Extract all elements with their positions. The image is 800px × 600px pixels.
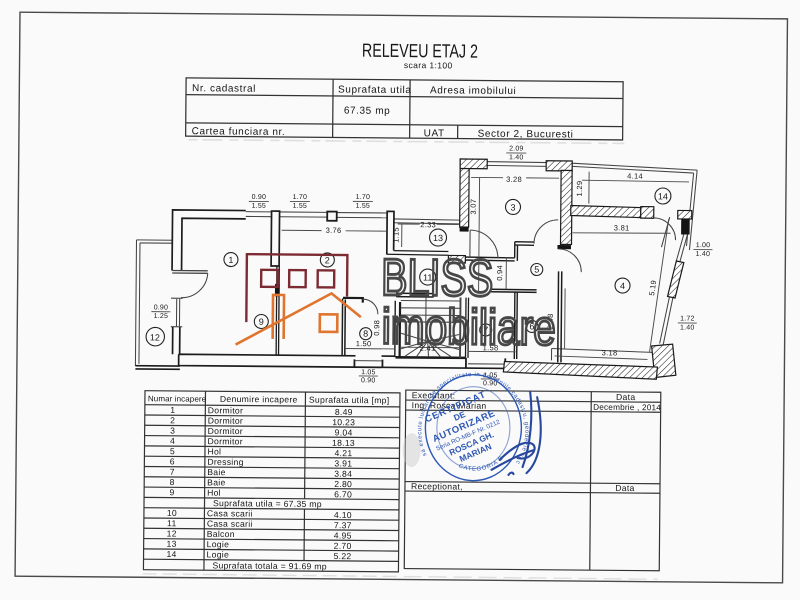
svg-text:3.76: 3.76 — [326, 226, 342, 235]
svg-text:1.55: 1.55 — [293, 203, 307, 210]
svg-text:Hol: Hol — [207, 488, 221, 498]
svg-text:3.91: 3.91 — [334, 458, 352, 468]
svg-text:1.40: 1.40 — [680, 324, 694, 331]
svg-text:13: 13 — [433, 233, 443, 243]
svg-text:Receptionat,: Receptionat, — [411, 481, 463, 491]
svg-text:12: 12 — [167, 528, 177, 538]
svg-text:Balcon: Balcon — [207, 529, 235, 539]
svg-text:3.84: 3.84 — [334, 469, 352, 479]
svg-text:2.33: 2.33 — [420, 220, 436, 229]
svg-text:6: 6 — [170, 456, 175, 466]
svg-text:1.50: 1.50 — [356, 339, 372, 348]
svg-text:4: 4 — [170, 436, 175, 446]
svg-text:Nr. cadastral: Nr. cadastral — [192, 83, 256, 95]
svg-text:3.07: 3.07 — [469, 199, 478, 215]
svg-text:Data: Data — [616, 392, 635, 402]
svg-text:67.35 mp: 67.35 mp — [344, 106, 391, 117]
svg-text:5.22: 5.22 — [334, 551, 352, 561]
svg-text:Decembrie , 2014: Decembrie , 2014 — [593, 403, 661, 413]
svg-text:1.70: 1.70 — [356, 194, 370, 201]
svg-text:2.80: 2.80 — [334, 479, 352, 489]
svg-text:14: 14 — [166, 549, 176, 559]
svg-text:2.70: 2.70 — [334, 541, 352, 551]
svg-text:0.94: 0.94 — [495, 265, 504, 281]
svg-text:2: 2 — [325, 255, 330, 265]
svg-text:1: 1 — [170, 405, 175, 415]
svg-text:scara 1:100: scara 1:100 — [404, 60, 453, 70]
svg-text:Cartea funciara nr.: Cartea funciara nr. — [192, 126, 286, 138]
svg-text:Adresa imobilului: Adresa imobilului — [430, 85, 516, 97]
svg-text:7.37: 7.37 — [334, 520, 352, 530]
svg-text:Logie: Logie — [207, 549, 230, 559]
svg-text:11: 11 — [167, 518, 177, 528]
svg-text:4.14: 4.14 — [627, 171, 643, 180]
svg-text:Dressing: Dressing — [207, 457, 243, 467]
svg-text:3: 3 — [170, 425, 175, 435]
svg-text:0.90: 0.90 — [361, 377, 375, 384]
svg-text:1.25: 1.25 — [154, 313, 168, 320]
svg-text:Suprafata utila = 67.35 mp: Suprafata utila = 67.35 mp — [213, 498, 322, 509]
svg-text:12: 12 — [150, 332, 160, 342]
svg-text:Baie: Baie — [207, 467, 225, 477]
svg-text:3: 3 — [510, 202, 515, 212]
svg-text:Denumire incapere: Denumire incapere — [220, 394, 298, 405]
svg-text:10: 10 — [167, 508, 177, 518]
svg-text:3.81: 3.81 — [614, 223, 630, 232]
svg-text:6.70: 6.70 — [334, 489, 352, 499]
svg-text:4.95: 4.95 — [334, 530, 352, 540]
svg-text:4.10: 4.10 — [334, 510, 352, 520]
svg-text:Dormitor: Dormitor — [208, 405, 243, 415]
svg-text:9: 9 — [259, 317, 264, 327]
svg-text:5.19: 5.19 — [647, 279, 658, 296]
svg-text:4: 4 — [620, 281, 625, 291]
svg-text:5: 5 — [170, 446, 175, 456]
svg-text:Suprafata utila: Suprafata utila — [338, 84, 412, 96]
svg-text:Sector 2, Bucuresti: Sector 2, Bucuresti — [478, 129, 574, 141]
svg-text:1.00: 1.00 — [696, 242, 710, 249]
svg-text:Logie: Logie — [207, 539, 230, 549]
svg-text:Dormitor: Dormitor — [208, 426, 243, 436]
svg-text:1.55: 1.55 — [356, 203, 370, 210]
svg-text:Hol: Hol — [207, 446, 221, 456]
svg-text:3.28: 3.28 — [506, 175, 522, 184]
svg-text:5: 5 — [534, 264, 539, 274]
svg-text:10.23: 10.23 — [332, 417, 355, 427]
svg-text:1.40: 1.40 — [509, 154, 523, 161]
svg-text:imobiliare: imobiliare — [382, 298, 556, 356]
svg-text:9.04: 9.04 — [335, 427, 353, 437]
svg-text:1: 1 — [228, 255, 233, 265]
svg-text:9: 9 — [170, 487, 175, 497]
svg-text:14: 14 — [658, 191, 668, 201]
svg-text:UAT: UAT — [424, 128, 445, 139]
svg-text:0.98: 0.98 — [372, 320, 381, 336]
svg-text:Suprafata utila [mp]: Suprafata utila [mp] — [309, 395, 390, 406]
svg-text:Numar incapere: Numar incapere — [148, 394, 207, 404]
svg-text:7: 7 — [170, 467, 175, 477]
svg-text:1.15: 1.15 — [391, 227, 400, 243]
svg-text:Dormitor: Dormitor — [208, 416, 243, 426]
svg-text:1.40: 1.40 — [696, 251, 710, 258]
svg-text:Casa scarii: Casa scarii — [207, 519, 253, 529]
svg-text:1.05: 1.05 — [361, 369, 375, 376]
svg-text:0.90: 0.90 — [154, 304, 168, 311]
svg-text:1.55: 1.55 — [252, 203, 266, 210]
svg-text:8.49: 8.49 — [335, 407, 353, 417]
svg-text:2.09: 2.09 — [509, 145, 523, 152]
svg-text:Data: Data — [615, 483, 634, 493]
svg-text:3.18: 3.18 — [602, 348, 618, 357]
svg-text:8: 8 — [363, 329, 368, 339]
svg-text:Dormitor: Dormitor — [208, 436, 243, 446]
svg-text:2: 2 — [170, 415, 175, 425]
svg-text:8: 8 — [170, 477, 175, 487]
svg-text:0.90: 0.90 — [252, 194, 266, 201]
svg-text:4.21: 4.21 — [334, 448, 352, 458]
svg-text:Casa scarii: Casa scarii — [207, 508, 253, 518]
svg-text:13: 13 — [167, 539, 177, 549]
svg-text:1.70: 1.70 — [293, 194, 307, 201]
svg-text:Baie: Baie — [207, 477, 225, 487]
svg-text:18.13: 18.13 — [332, 438, 355, 448]
svg-text:Suprafata totala = 91.69 mp: Suprafata totala = 91.69 mp — [212, 560, 326, 571]
svg-text:1.72: 1.72 — [680, 315, 694, 322]
svg-text:1.29: 1.29 — [575, 181, 584, 197]
